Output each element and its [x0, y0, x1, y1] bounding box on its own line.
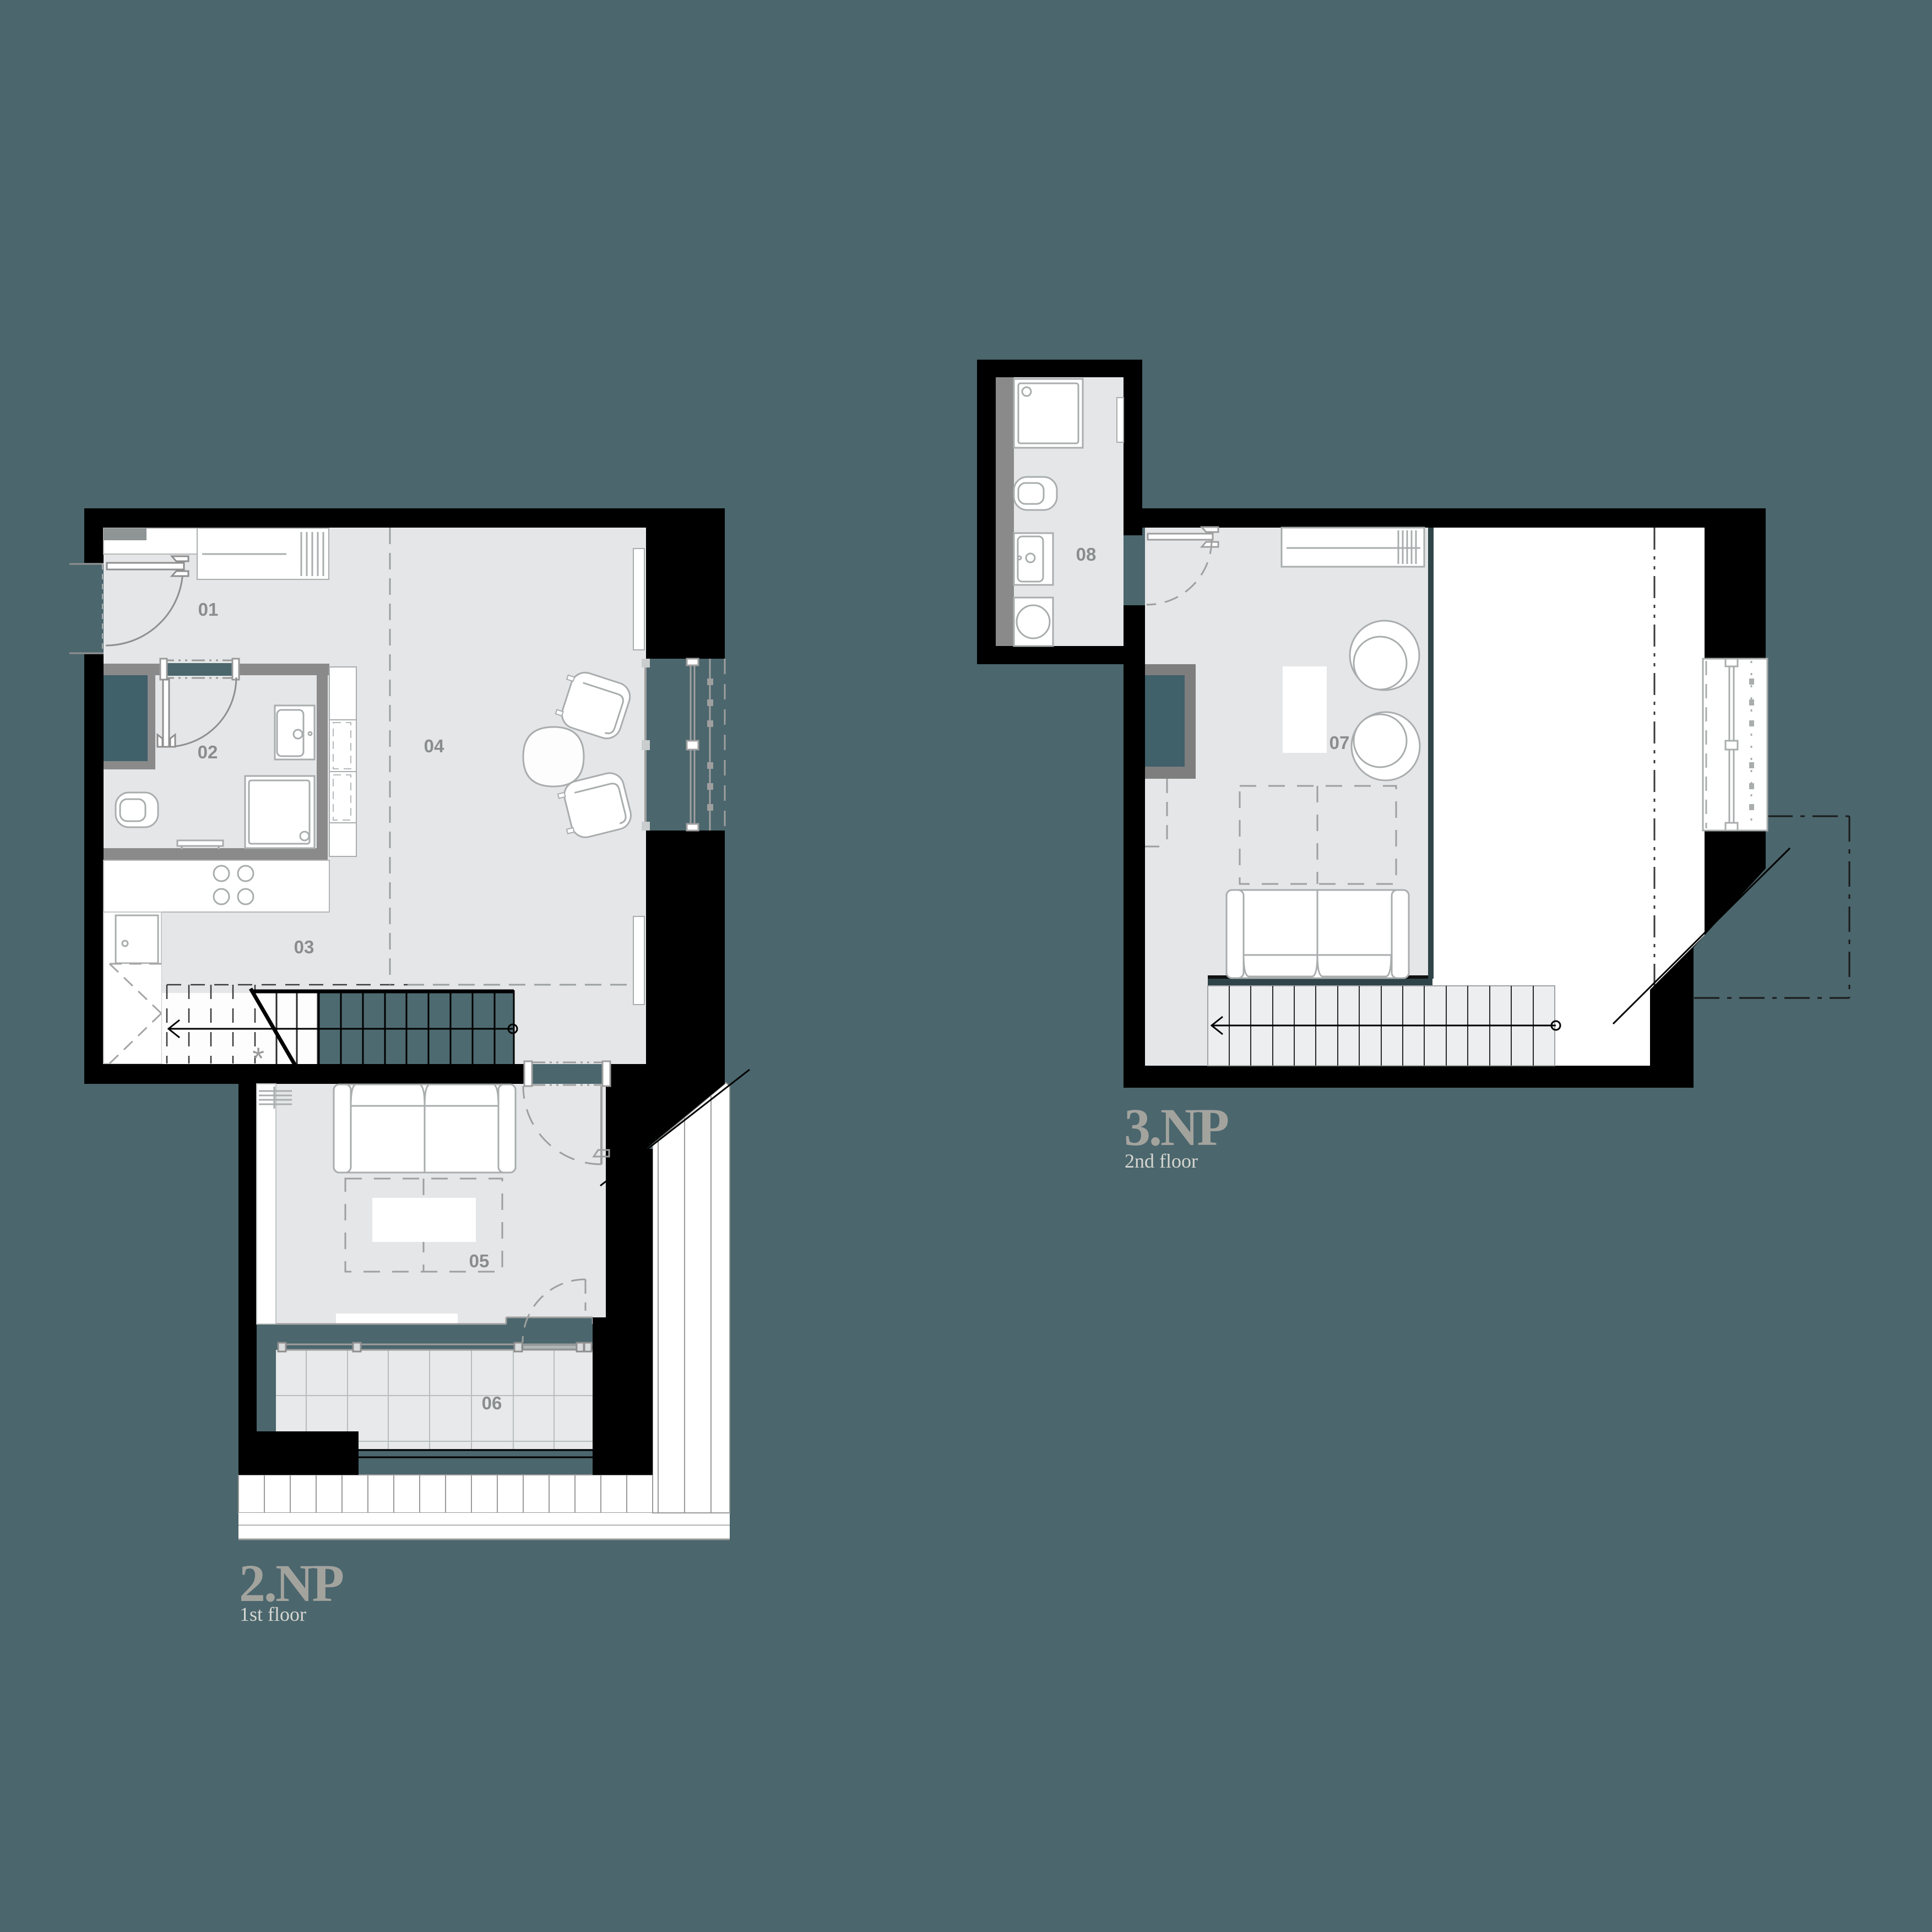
svg-text:05: 05: [469, 1251, 490, 1271]
svg-text:2nd floor: 2nd floor: [1125, 1150, 1198, 1172]
svg-text:06: 06: [482, 1393, 502, 1413]
svg-text:3.NP: 3.NP: [1124, 1098, 1228, 1157]
svg-text:02: 02: [198, 742, 218, 762]
svg-text:04: 04: [424, 736, 444, 756]
svg-text:1st floor: 1st floor: [240, 1603, 306, 1625]
svg-text:*: *: [252, 1041, 264, 1076]
svg-text:01: 01: [198, 599, 219, 620]
svg-text:08: 08: [1076, 544, 1097, 565]
svg-text:03: 03: [294, 937, 314, 957]
svg-text:07: 07: [1329, 732, 1350, 753]
